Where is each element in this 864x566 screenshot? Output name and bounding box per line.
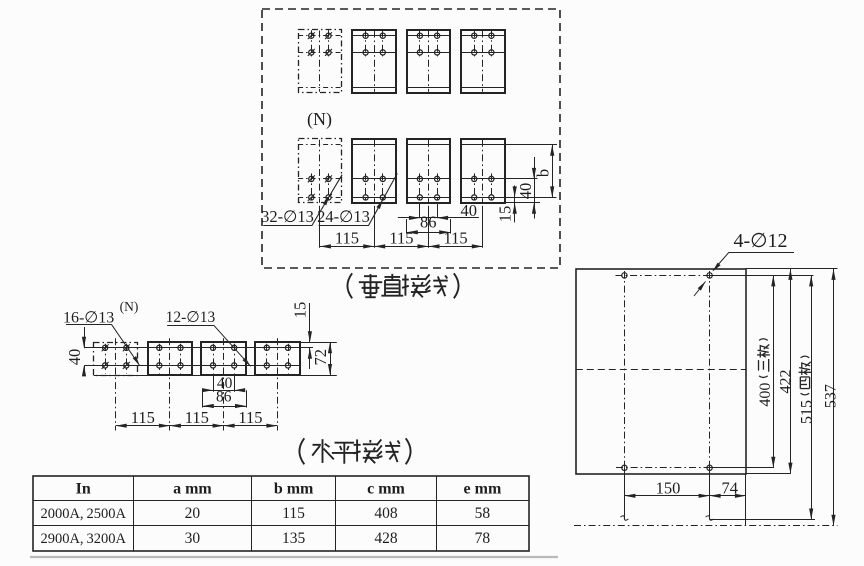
svg-text:135: 135 [282, 530, 306, 547]
svg-text:30: 30 [185, 530, 201, 547]
svg-text:115: 115 [444, 229, 468, 248]
svg-text:2000A, 2500A: 2000A, 2500A [40, 506, 126, 522]
svg-text:32-∅13: 32-∅13 [261, 207, 314, 226]
svg-text:115: 115 [238, 408, 262, 427]
svg-text:400: 400 [757, 383, 774, 407]
svg-text:15: 15 [291, 302, 310, 319]
svg-text:74: 74 [721, 479, 738, 498]
svg-text:115: 115 [185, 408, 209, 427]
svg-text:428: 428 [374, 530, 398, 547]
svg-text:115: 115 [389, 229, 413, 248]
svg-text:78: 78 [475, 530, 491, 547]
svg-text:c mm: c mm [367, 481, 405, 498]
svg-text:a mm: a mm [173, 481, 212, 498]
svg-text:150: 150 [656, 479, 681, 498]
svg-text:16-∅13: 16-∅13 [63, 310, 114, 327]
svg-text:In: In [76, 481, 91, 498]
svg-text:15: 15 [496, 206, 515, 223]
svg-text:2900A, 3200A: 2900A, 3200A [40, 531, 126, 547]
svg-text:12-∅13: 12-∅13 [166, 309, 216, 326]
svg-text:537: 537 [822, 384, 839, 408]
svg-text:408: 408 [374, 505, 398, 522]
svg-text:86: 86 [216, 389, 232, 406]
svg-text:b: b [534, 169, 553, 177]
svg-text:515: 515 [798, 400, 815, 424]
svg-text:40: 40 [461, 201, 478, 220]
svg-text:4-∅12: 4-∅12 [733, 230, 787, 252]
svg-text:(N): (N) [307, 109, 332, 130]
svg-text:40: 40 [65, 349, 84, 366]
svg-text:24-∅13: 24-∅13 [317, 207, 370, 226]
svg-text:58: 58 [475, 505, 491, 522]
svg-text:72: 72 [311, 349, 330, 366]
svg-text:422: 422 [778, 370, 795, 394]
svg-text:b mm: b mm [274, 481, 314, 498]
svg-text:115: 115 [335, 229, 359, 248]
svg-text:40: 40 [516, 183, 535, 200]
svg-text:20: 20 [185, 505, 201, 522]
svg-text:115: 115 [131, 408, 155, 427]
svg-text:115: 115 [282, 505, 305, 522]
svg-text:(N): (N) [120, 299, 139, 314]
svg-text:e mm: e mm [464, 481, 502, 498]
